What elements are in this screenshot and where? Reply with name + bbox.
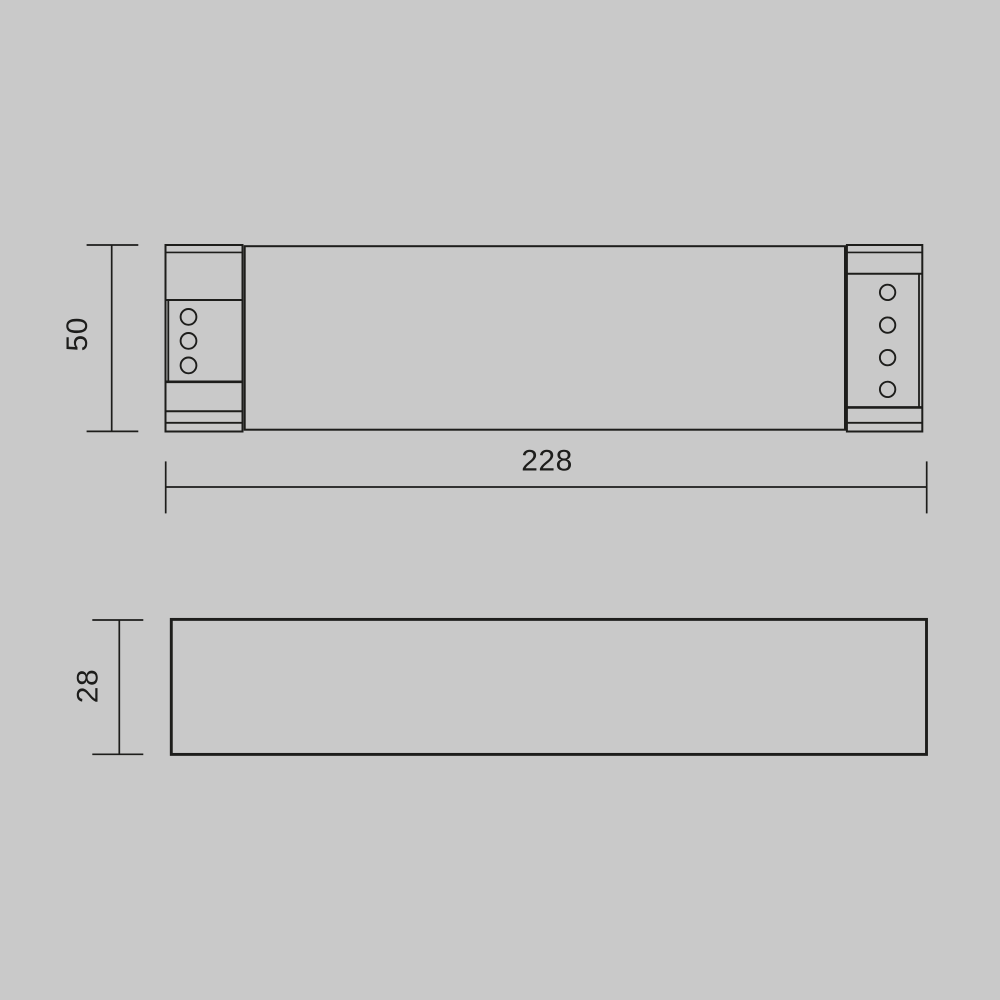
left-terminal-block	[166, 245, 243, 432]
terminal-screw-hole	[880, 317, 895, 332]
terminal-screw-hole	[181, 333, 197, 349]
length-dimension: 228	[166, 445, 927, 514]
terminal-screw-hole	[880, 285, 895, 300]
height-dimension-label: 50	[61, 317, 94, 351]
depth-dimension-label: 28	[72, 669, 105, 703]
front-view	[171, 619, 926, 754]
top-view	[166, 245, 923, 432]
side-profile-outline	[171, 619, 926, 754]
terminal-screw-hole	[880, 382, 895, 397]
depth-dimension: 28	[72, 620, 144, 754]
right-terminal-block	[847, 245, 922, 432]
terminal-screw-hole	[880, 350, 895, 365]
height-dimension: 50	[61, 245, 138, 431]
dimension-drawing: 50 228 28	[0, 0, 1000, 1000]
left-terminal-block-outline	[166, 245, 243, 432]
terminal-screw-hole	[181, 358, 197, 374]
length-dimension-label: 228	[521, 445, 573, 478]
drawing-canvas: 50 228 28	[0, 0, 1000, 1000]
device-body-outline	[245, 246, 845, 430]
terminal-screw-hole	[181, 309, 197, 325]
